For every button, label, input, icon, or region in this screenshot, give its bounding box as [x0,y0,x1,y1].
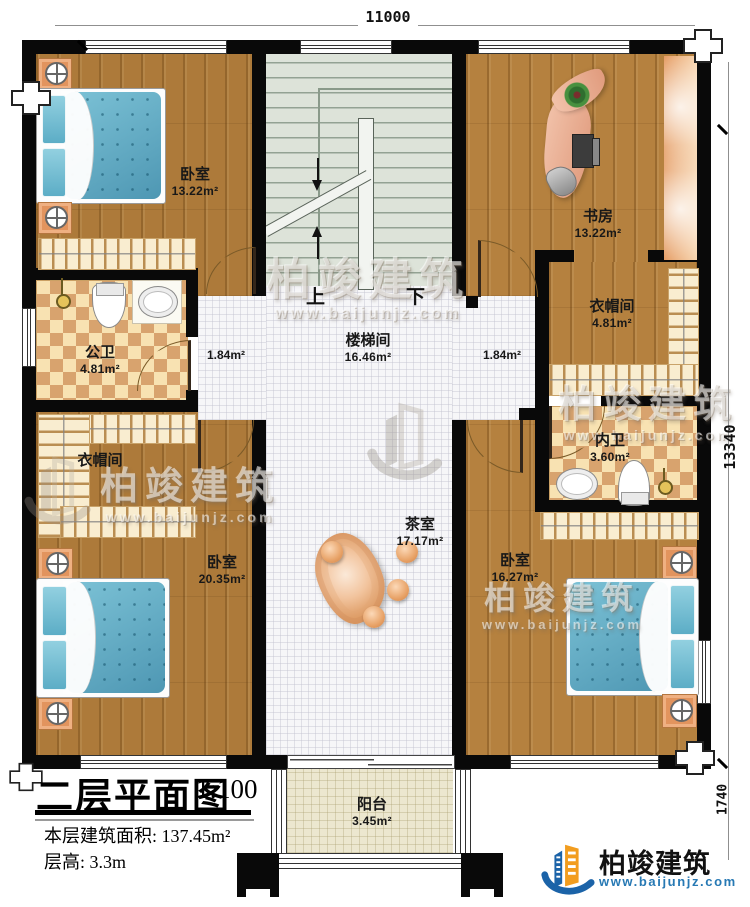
pillow [42,640,67,690]
room-name: 衣帽间 [589,298,634,315]
label-closet-right: 衣帽间 4.81m² [567,298,657,330]
computer-monitor [592,138,600,166]
watermark-url: www.baijunjz.com [178,305,558,323]
bed [36,88,166,204]
room-name: 衣帽间 [77,452,122,469]
floor-drain-icon [658,480,673,495]
room-name: 公卫 [85,344,115,361]
room-area: 4.81m² [567,316,657,330]
column-foot [494,889,503,897]
label-balcony: 阳台 3.45m² [327,796,417,828]
wardrobe-strip [540,512,699,540]
label-study: 书房 13.22m² [553,208,643,240]
stool [321,541,343,563]
watermark-url: www.baijunjz.com [432,617,692,632]
wardrobe-strip [668,268,699,368]
dimension-right: 13340 [721,417,739,477]
room-name: 阳台 [357,796,387,813]
cabinet [664,56,697,260]
sink [556,468,598,500]
nightstand [662,546,697,580]
dimension-tick [717,124,728,135]
toilet-tank [96,283,125,296]
plant-icon [564,82,590,108]
floor-area-value: 137.45m² [162,826,231,846]
room-name: 茶室 [405,516,435,533]
label-public-bathroom: 公卫 4.81m² [55,344,145,376]
lamp-icon [670,551,693,574]
label-bedroom-bottom-left: 卧室 20.35m² [177,554,267,586]
stair-arrow-up-icon [312,226,322,237]
watermark-text: 柏竣建筑 [178,258,558,302]
axis-marker-icon [10,80,52,116]
column-foot [237,889,246,897]
room-name: 书房 [583,208,613,225]
room-area: 13.22m² [150,184,240,198]
dimension-tick [717,758,728,769]
floor-height-label: 层高: [44,852,85,872]
floor-area-line: 本层建筑面积: 137.45m² [44,822,230,848]
room-area: 4.81m² [55,362,145,376]
column [461,853,503,889]
stair-outline [318,88,452,90]
watermark-text: 柏竣建筑 [432,582,692,614]
column-foot [270,889,279,897]
stool [387,579,409,601]
column-foot [461,889,470,897]
room-area: 13.22m² [553,226,643,240]
label-closet-left: 衣帽间 [60,452,140,470]
label-tea-room: 茶室 17.17m² [375,516,465,548]
wall-segment [22,400,198,412]
watermark-text: 柏竣建筑 [498,386,750,424]
window [85,40,227,54]
wall-segment [535,500,697,512]
computer-monitor [572,134,594,168]
floorplan-canvas: 柏竣建筑 www.baijunjz.com 柏竣建筑 www.baijunjz.… [0,0,750,907]
label-bedroom-top-left: 卧室 13.22m² [150,166,240,198]
watermark-logo-icon [358,398,450,484]
bed [36,578,170,698]
floor-area-label: 本层建筑面积: [44,826,157,846]
room-area: 3.45m² [327,814,417,828]
stair-arrow-stem [317,158,319,180]
label-bedroom-bottom-right: 卧室 16.27m² [470,552,560,584]
balcony-railing [271,853,471,869]
watermark: 柏竣建筑 www.baijunjz.com [178,258,558,323]
window [478,40,630,54]
stair-up-label: 上 [306,282,325,309]
floor-drain-icon [56,294,71,309]
room-area: 1.84m² [483,348,521,362]
column [237,853,279,889]
company-logo-icon [538,838,596,898]
lamp-icon [45,206,68,229]
room-area: 17.17m² [375,534,465,548]
watermark: 柏竣建筑 www.baijunjz.com [432,582,692,632]
room-area: 3.60m² [565,450,655,464]
title-underline [35,810,251,815]
balcony-sliding-door [287,755,455,769]
wardrobe-strip [38,238,196,270]
room-area: 1.84m² [207,348,245,362]
pillow [42,148,66,197]
label-corridor-right: 1.84m² [462,348,542,362]
stair-arrow-down-icon [312,180,322,191]
lamp-icon [670,699,693,722]
toilet-tank [621,492,648,505]
lamp-icon [46,552,69,575]
axis-marker-icon [674,740,716,776]
axis-marker-icon [682,28,724,64]
window [22,308,36,367]
room-area: 16.46m² [323,350,413,364]
room-name: 楼梯间 [345,332,390,349]
label-corridor-left: 1.84m² [186,348,266,362]
stair-down-label: 下 [406,282,425,309]
room-area: 20.35m² [177,572,267,586]
dimension-balcony: 1740 [716,773,731,827]
label-stair-hall: 楼梯间 16.46m² [323,332,413,364]
stool [363,606,385,628]
pillow [670,639,695,689]
title-underline-thin [35,819,254,821]
lamp-icon [46,702,69,725]
floor-height-value: 3.3m [90,852,127,872]
company-url: www.baijunjz.com [599,874,737,889]
window [510,755,659,769]
room-name: 内卫 [595,432,625,449]
label-private-bathroom: 内卫 3.60m² [565,432,655,464]
window [300,40,392,54]
room-name: 卧室 [500,552,530,569]
sink [138,286,178,318]
plan-scale: 1:100 [196,774,258,805]
pillow [42,586,67,636]
dimension-top: 11000 [358,8,418,26]
floor-height-line: 层高: 3.3m [44,848,126,874]
nightstand [662,694,697,728]
room-area: 16.27m² [470,570,560,584]
nightstand [38,698,73,730]
nightstand [38,548,73,580]
room-name: 卧室 [180,166,210,183]
nightstand [38,202,72,234]
window [697,640,711,704]
room-name: 卧室 [207,554,237,571]
